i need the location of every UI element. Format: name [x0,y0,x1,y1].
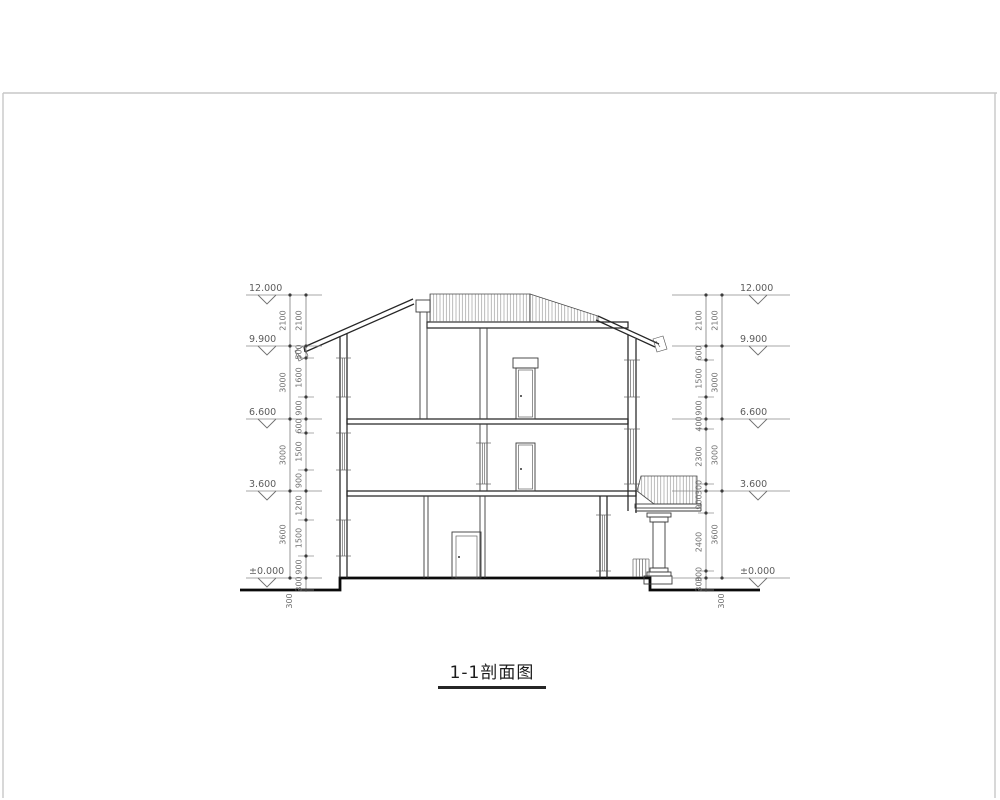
elevation-label: 3.600 [249,479,276,490]
dimension-label: 900 [695,494,704,509]
tick-dot [304,554,307,557]
dimension-label: 2400 [695,532,704,552]
tick-dot [720,344,723,347]
elevation-label: 6.600 [249,407,276,418]
tick-dot [704,569,707,572]
tick-dot [704,293,707,296]
ground-line [240,578,760,590]
dimension-label: 900 [295,400,304,415]
dimension-label: 300 [695,480,704,495]
dimension-label: 1500 [295,528,304,548]
dimension-label: 2100 [695,310,704,330]
tick-dot [304,356,307,359]
elevation-marker-triangle [749,419,767,428]
dimension-label: 2300 [695,446,704,466]
elevation-marker-triangle [258,578,276,587]
porch-roof-hatch [637,476,697,504]
right-window-3f [624,360,640,397]
tick-dot [704,358,707,361]
tick-dot [288,293,291,296]
dimension-label: 3000 [711,445,720,465]
building-section [240,294,760,590]
tick-dot [704,344,707,347]
dimension-label: 3000 [279,372,288,392]
elevation-marker-triangle [749,491,767,500]
right-eave-gutter [653,336,667,352]
first-floor-right-wall [596,496,611,578]
dimension-label: 900 [295,473,304,488]
left-window-1f [336,520,351,556]
elevation-marker-triangle [258,295,276,304]
interior-walls [420,302,491,578]
interior-window-2f [476,443,491,484]
tick-dot [304,417,307,420]
page-frame [3,93,997,798]
far-roof-hatch [430,294,530,322]
tick-dot [304,344,307,347]
dimension-label: 1600 [295,367,304,387]
dimension-label: 900 [295,559,304,574]
tick-dot [288,344,291,347]
left-window-2f [336,433,351,470]
dimension-annotations: 2100500160090060015009001200150090030021… [246,283,790,609]
tick-dot [704,576,707,579]
dimension-label: 1200 [295,495,304,515]
dimension-label: 3600 [279,524,288,544]
dimension-label: 300 [695,576,704,591]
dimension-label: 900 [695,400,704,415]
tick-dot [704,482,707,485]
far-roof-hatch-slope [530,294,598,322]
tick-dot [304,588,307,591]
tick-dot [288,489,291,492]
tick-dot [720,293,723,296]
tick-dot [720,489,723,492]
elevation-label: 9.900 [740,334,767,345]
floor-slabs [347,322,636,496]
ridge-chimney [416,300,430,312]
elevation-marker-triangle [258,491,276,500]
dimension-label: 3000 [711,372,720,392]
dimension-label: 400 [695,416,704,431]
below-grade-dimension-label: 300 [717,593,726,608]
door-2f [516,443,535,491]
tick-dot [288,417,291,420]
tick-dot [704,427,707,430]
dimension-label: 2100 [279,310,288,330]
tick-dot [304,431,307,434]
tick-dot [304,293,307,296]
below-grade-dimension-label: 300 [285,593,294,608]
porch-column [644,513,672,584]
tick-dot [704,511,707,514]
tick-dot [704,395,707,398]
tick-dot [304,395,307,398]
door-1f [452,532,481,578]
elevation-label: 6.600 [740,407,767,418]
dimension-label: 600 [695,345,704,360]
elevation-label: 12.000 [249,283,282,294]
tick-dot [304,468,307,471]
tick-dot [304,518,307,521]
elevation-label: ±0.000 [740,566,775,577]
dimension-label: 1500 [695,368,704,388]
porch-fascia [635,504,701,508]
dimension-label: 2100 [711,310,720,330]
dimension-label: 2100 [295,310,304,330]
right-window-1f [596,515,611,571]
dimension-label: 3600 [711,524,720,544]
dimension-label: 300 [295,576,304,591]
tick-dot [288,576,291,579]
door-3f [513,358,538,419]
dimension-label: 500 [295,344,304,359]
elevation-label: 12.000 [740,283,773,294]
drawing-title: 1-1剖面图 [438,658,546,689]
tick-dot [704,489,707,492]
elevation-marker-triangle [258,346,276,355]
drawing-sheet: 2100500160090060015009001200150090030021… [0,0,1000,800]
elevation-label: ±0.000 [249,566,284,577]
tick-dot [704,417,707,420]
tick-dot [304,576,307,579]
tick-dot [704,588,707,591]
elevation-marker-triangle [749,346,767,355]
elevation-label: 3.600 [740,479,767,490]
tick-dot [720,576,723,579]
tick-dot [720,417,723,420]
porch [633,476,701,584]
elevation-marker-triangle [749,578,767,587]
dimension-label: 3000 [279,445,288,465]
elevation-marker-triangle [258,419,276,428]
left-window-3f [336,358,351,397]
elevation-marker-triangle [749,295,767,304]
dimension-label: 600 [295,418,304,433]
elevation-label: 9.900 [249,334,276,345]
right-balcony-door-2f [624,429,640,484]
tick-dot [304,489,307,492]
left-exterior-wall [336,333,351,578]
dimension-label: 1500 [295,441,304,461]
